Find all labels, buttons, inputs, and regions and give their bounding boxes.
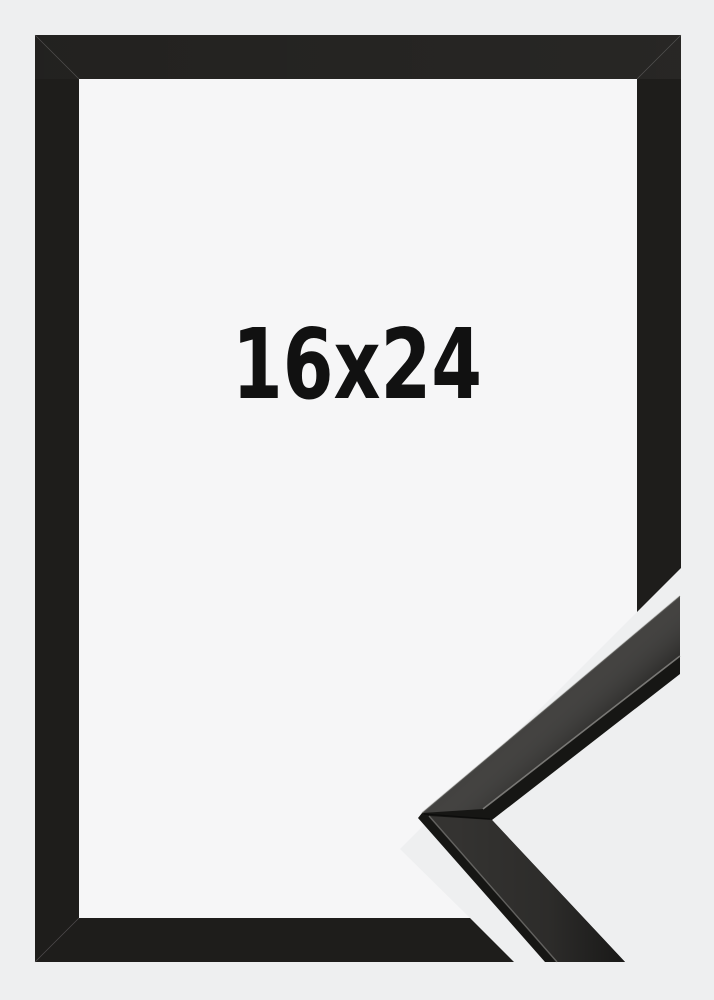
frame-border-bottom bbox=[35, 918, 514, 962]
size-label: 16x24 bbox=[232, 308, 482, 421]
frame-border-sheen bbox=[35, 35, 681, 79]
product-image: 16x24 bbox=[0, 0, 714, 1000]
frame-border-right bbox=[637, 35, 681, 612]
product-photo-frame-16x24: 16x24 bbox=[0, 0, 714, 1000]
frame-border-left bbox=[35, 35, 79, 962]
